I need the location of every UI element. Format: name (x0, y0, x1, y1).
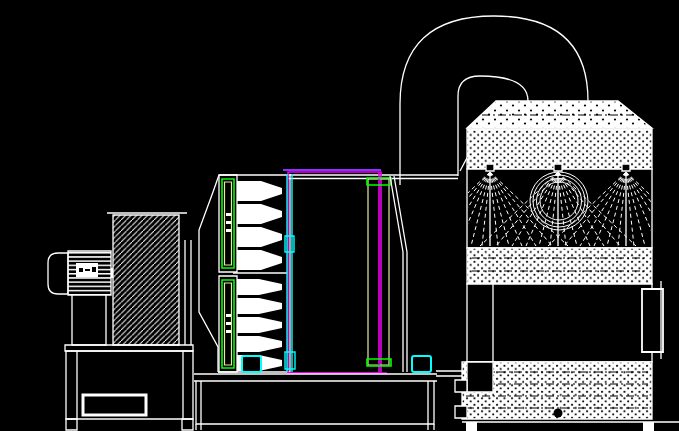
water-tank: water tank (455, 362, 652, 419)
belt-guard: belt guard (hatched) (107, 213, 191, 345)
tower-upper-band (467, 129, 652, 169)
nozzle-3 (622, 164, 630, 171)
spray-tower: spray scrubber tower spray nozzles sight… (412, 101, 679, 431)
base-leg-left (66, 419, 77, 430)
base-opening (83, 395, 146, 415)
foot-left (242, 356, 261, 372)
machine-base-frame: machine base frame (194, 374, 437, 430)
screen-column: discharge screen column (367, 172, 391, 373)
access-panel (642, 289, 663, 352)
motor-fan-cover (48, 253, 68, 294)
knife-bar-upper: upper knife bar (219, 175, 237, 272)
motor-assembly: electric motor (48, 251, 123, 345)
cad-canvas: CAD elevation drawing: size-reduction ma… (0, 0, 679, 431)
base-pipe (436, 371, 462, 376)
downcomer-notch (467, 362, 493, 392)
cbase-legs (196, 424, 434, 430)
motor-support (72, 295, 106, 345)
motor-base-frame: motor base frame (65, 345, 193, 430)
mid-section-box (467, 284, 652, 362)
cad-drawing: CAD elevation drawing: size-reduction ma… (0, 0, 679, 431)
base-body (66, 351, 193, 419)
chamber-magenta-box (288, 172, 381, 373)
knife-bar-ticks (226, 213, 231, 232)
tower-legs: tower legs (466, 422, 654, 431)
rotor-teeth: rotor teeth (237, 181, 282, 371)
foot-right (412, 356, 431, 372)
tower-mid-section: tower mid section (467, 281, 663, 362)
tank-fitting-lower (455, 406, 467, 418)
guard-hatch (113, 215, 179, 345)
tower-mid-band (467, 248, 652, 284)
knife-bar-ticks (226, 314, 231, 333)
spray-chamber (467, 169, 652, 248)
machine-right-wall (390, 176, 407, 372)
base-top-plate (65, 345, 193, 351)
cutting-chamber (283, 170, 387, 373)
tank-fitting-upper (455, 380, 467, 392)
drain-plug (554, 409, 563, 418)
hopper-left-profile (199, 175, 219, 372)
nozzle-2 (554, 164, 562, 171)
granulator: cutting chamber upper knife bar lower kn… (199, 170, 458, 373)
base-leg-right (182, 419, 193, 430)
cbase-body (196, 381, 434, 424)
knife-bar-lower: lower knife bar (219, 276, 237, 372)
nozzle-1 (486, 164, 494, 171)
